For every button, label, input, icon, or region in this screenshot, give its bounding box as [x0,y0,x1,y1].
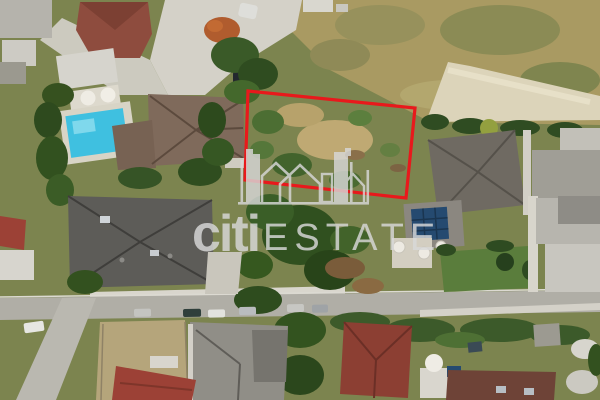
parked-car [239,307,256,315]
antenna-right [350,162,353,202]
watermark-brand-estate: ESTATE [263,217,441,259]
brown-roof-house [446,370,556,400]
parked-car [134,309,151,317]
parked-car [183,309,201,317]
watermark-brand-citi: citi [192,205,259,263]
brush-debris [325,257,365,279]
parked-car [312,305,328,313]
umbrella [425,354,443,372]
parked-car [287,304,304,312]
parked-car [208,309,225,317]
antenna-left [241,160,244,202]
white-roof-building [0,0,52,38]
umbrella [81,91,96,106]
south-center-houses [96,320,288,400]
tower-left [246,154,260,202]
red-roof-house-west [0,216,26,250]
umbrella [101,88,116,103]
shed [533,323,560,347]
aerial-photo: citi ESTATE [0,0,600,400]
aerial-photo-canvas: citi ESTATE [0,0,600,400]
